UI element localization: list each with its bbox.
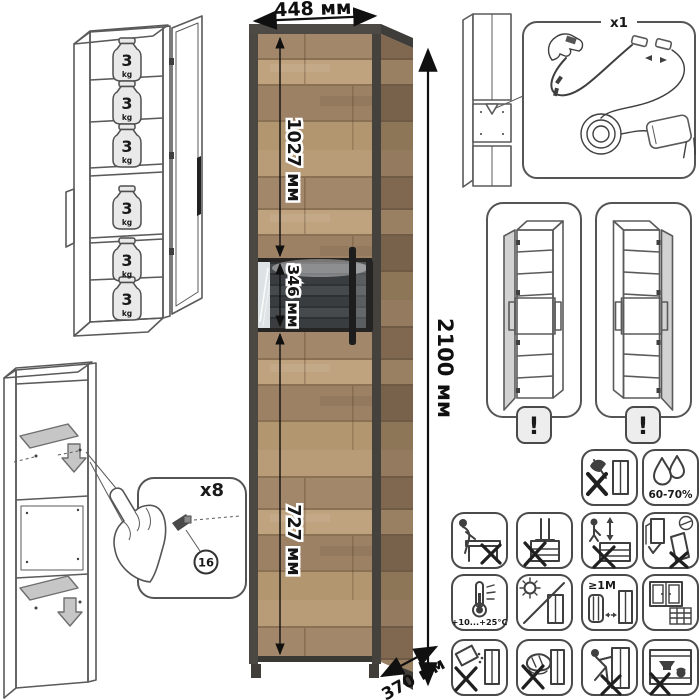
door-handle-upper [349,247,356,345]
weight-icon: 3 kg 3 kg 3 kg 3 kg 3 kg 3 kg [113,38,141,320]
shelf-load-diagram: 3 kg 3 kg 3 kg 3 kg 3 kg 3 kg [66,16,202,336]
glass-shelf [20,576,78,600]
svg-text:!: ! [638,412,649,440]
dimension-lower-label: 727 мм [283,504,303,575]
cabinet-top-edge [249,24,381,34]
svg-text:3: 3 [121,137,132,156]
svg-text:3: 3 [121,94,132,113]
down-arrow [62,444,86,472]
svg-text:kg: kg [122,309,132,318]
fastener-count-label: x8 [200,480,224,501]
led-kit-quantity: x1 [610,15,628,31]
upper-door [258,34,372,260]
svg-text:3: 3 [121,251,132,270]
glass-side-pane [66,189,74,247]
svg-text:kg: kg [122,113,132,122]
variant-left-panel [487,203,581,417]
svg-text:+10...+25°C: +10...+25°C [452,617,508,627]
instruction-canvas: 3 kg 3 kg 3 kg 3 kg 3 kg 3 kg [0,0,700,700]
back-panel [21,506,83,570]
shelf-install-diagram: x8 16 [4,362,246,698]
open-glass-door [169,16,202,314]
down-arrow [58,598,82,626]
part-number-label: 16 [198,556,214,570]
svg-text:kg: kg [122,70,132,79]
dimension-display-label: 346 мм [284,264,302,327]
led-kit-diagram: x1 [463,14,697,187]
svg-text:kg: kg [122,270,132,279]
dimension-height-label: 2100 мм [433,318,457,418]
variant-right-panel [596,203,691,417]
svg-text:≥1M: ≥1M [588,579,616,592]
svg-text:!: ! [529,412,540,440]
door-handle [197,156,201,216]
svg-text:kg: kg [122,218,132,227]
furniture-instruction-sheet: 3 kg 3 kg 3 kg 3 kg 3 kg 3 kg [0,0,700,700]
svg-text:3: 3 [121,51,132,70]
lower-door [258,332,372,662]
svg-text:3: 3 [121,199,132,218]
door-handle-lower [366,260,373,332]
svg-text:3: 3 [121,290,132,309]
svg-text:60-70%: 60-70% [648,489,693,501]
product-render [249,24,413,690]
care-icon-grid: 60-70% [452,450,698,695]
dimension-upper-label: 1027 мм [283,118,303,201]
variant-panels: ! ! [487,203,691,443]
svg-text:kg: kg [122,156,132,165]
